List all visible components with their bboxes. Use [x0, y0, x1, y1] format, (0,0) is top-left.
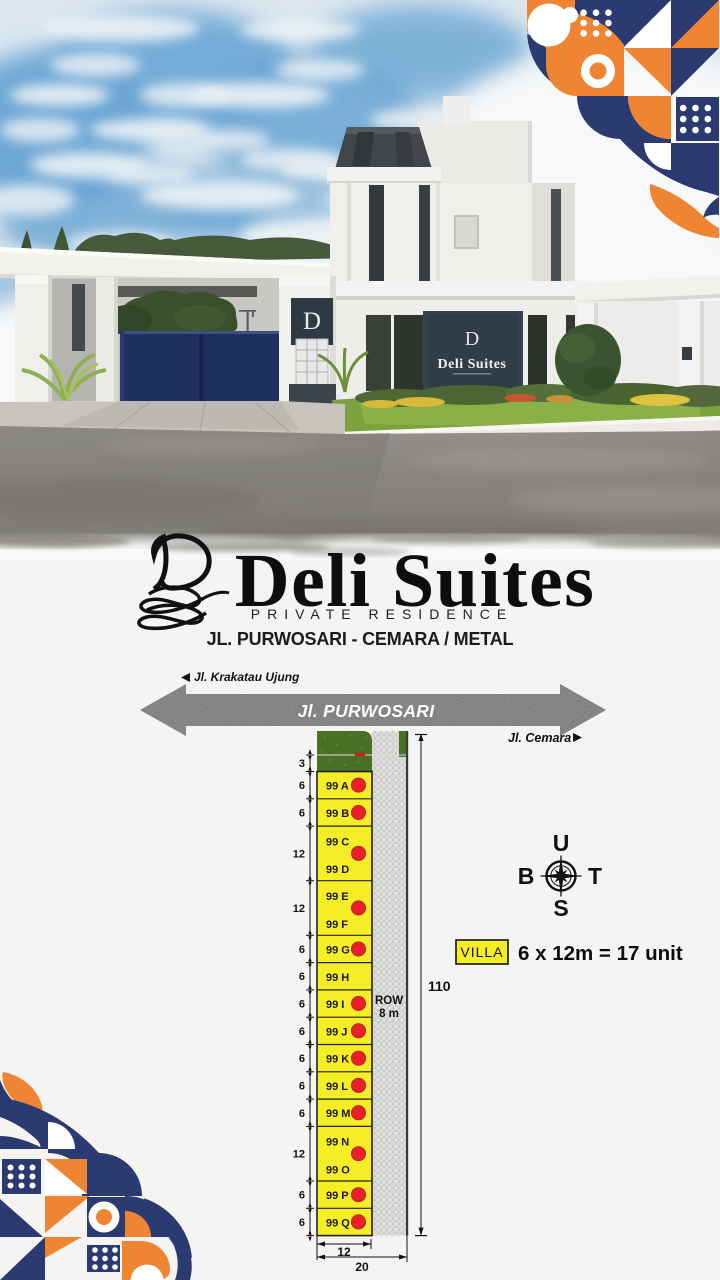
svg-text:6: 6: [299, 944, 305, 956]
svg-text:99 K: 99 K: [326, 1054, 349, 1066]
svg-text:6: 6: [299, 1080, 305, 1092]
svg-text:12: 12: [293, 1149, 305, 1161]
svg-text:99 B: 99 B: [326, 808, 349, 820]
svg-text:6: 6: [299, 808, 305, 820]
svg-text:D: D: [303, 308, 321, 335]
svg-text:99 G: 99 G: [326, 945, 350, 957]
svg-text:S: S: [553, 895, 568, 921]
svg-text:JL. PURWOSARI - CEMARA / METAL: JL. PURWOSARI - CEMARA / METAL: [207, 629, 514, 649]
svg-text:99 O: 99 O: [326, 1165, 350, 1177]
svg-text:6: 6: [299, 780, 305, 792]
svg-text:Jl. Krakatau Ujung: Jl. Krakatau Ujung: [194, 670, 300, 684]
svg-text:99 J: 99 J: [326, 1026, 347, 1038]
svg-text:Jl. PURWOSARI: Jl. PURWOSARI: [298, 701, 436, 721]
svg-text:99 L: 99 L: [326, 1081, 348, 1093]
svg-text:VILLA: VILLA: [460, 944, 503, 960]
svg-text:20: 20: [355, 1260, 369, 1274]
svg-text:110: 110: [428, 978, 451, 994]
svg-text:Deli Suites: Deli Suites: [438, 357, 507, 372]
svg-text:99 A: 99 A: [326, 781, 349, 793]
svg-text:99 I: 99 I: [326, 999, 344, 1011]
svg-text:8 m: 8 m: [379, 1008, 399, 1020]
svg-text:6: 6: [299, 1053, 305, 1065]
svg-text:6: 6: [299, 999, 305, 1011]
svg-text:6: 6: [299, 1217, 305, 1229]
svg-text:T: T: [588, 863, 602, 889]
svg-text:3: 3: [299, 758, 305, 770]
svg-text:6: 6: [299, 971, 305, 983]
svg-text:U: U: [553, 830, 570, 856]
svg-text:99 E: 99 E: [326, 891, 349, 903]
svg-text:6: 6: [299, 1108, 305, 1120]
svg-text:12: 12: [293, 903, 305, 915]
svg-text:99 P: 99 P: [326, 1190, 349, 1202]
svg-text:99 H: 99 H: [326, 972, 349, 984]
svg-text:ROW: ROW: [375, 995, 403, 1007]
svg-text:99 F: 99 F: [326, 919, 348, 931]
svg-text:PRIVATE RESIDENCE: PRIVATE RESIDENCE: [251, 606, 513, 622]
svg-text:D: D: [465, 328, 479, 350]
svg-text:6: 6: [299, 1026, 305, 1038]
svg-text:Jl. Cemara: Jl. Cemara: [508, 731, 571, 745]
svg-text:6: 6: [299, 1190, 305, 1202]
svg-text:12: 12: [293, 848, 305, 860]
svg-text:99 N: 99 N: [326, 1137, 349, 1149]
svg-text:B: B: [518, 863, 535, 889]
svg-text:99 C: 99 C: [326, 836, 349, 848]
svg-text:99 M: 99 M: [326, 1108, 350, 1120]
svg-text:99 Q: 99 Q: [326, 1217, 350, 1229]
svg-text:99 D: 99 D: [326, 864, 349, 876]
svg-text:6 x 12m = 17 unit: 6 x 12m = 17 unit: [518, 942, 683, 965]
